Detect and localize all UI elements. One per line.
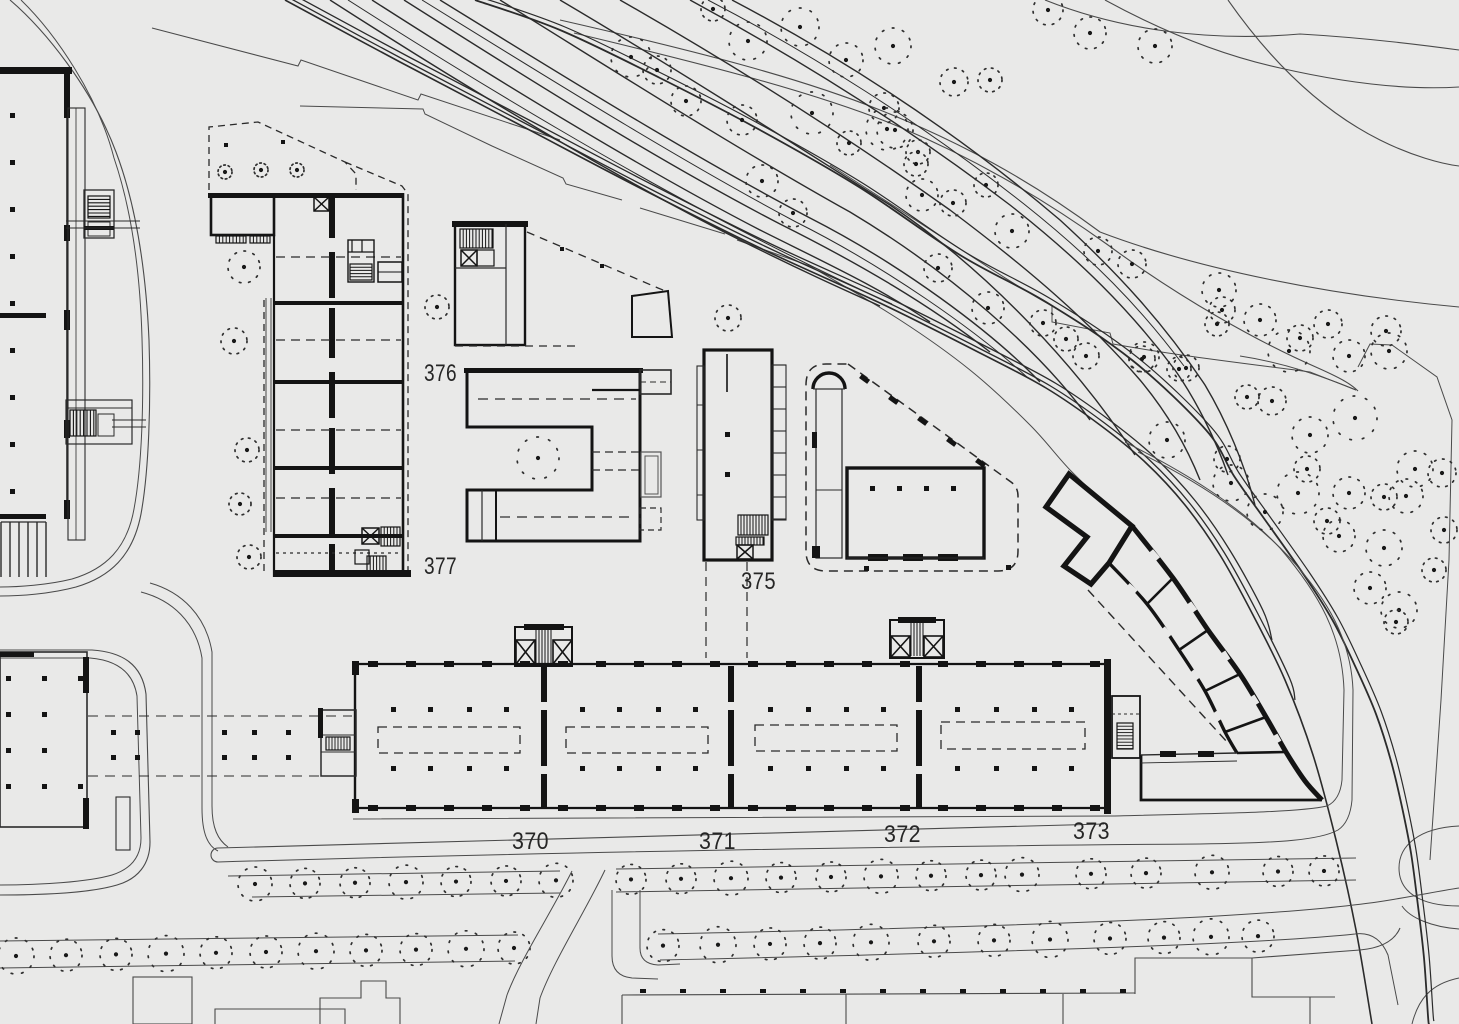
svg-text:377: 377 — [424, 553, 457, 580]
svg-text:373: 373 — [1073, 818, 1110, 845]
svg-text:372: 372 — [884, 821, 921, 848]
svg-text:376: 376 — [424, 360, 457, 387]
svg-text:375: 375 — [741, 568, 776, 595]
svg-text:371: 371 — [699, 828, 736, 855]
svg-text:370: 370 — [512, 828, 549, 855]
